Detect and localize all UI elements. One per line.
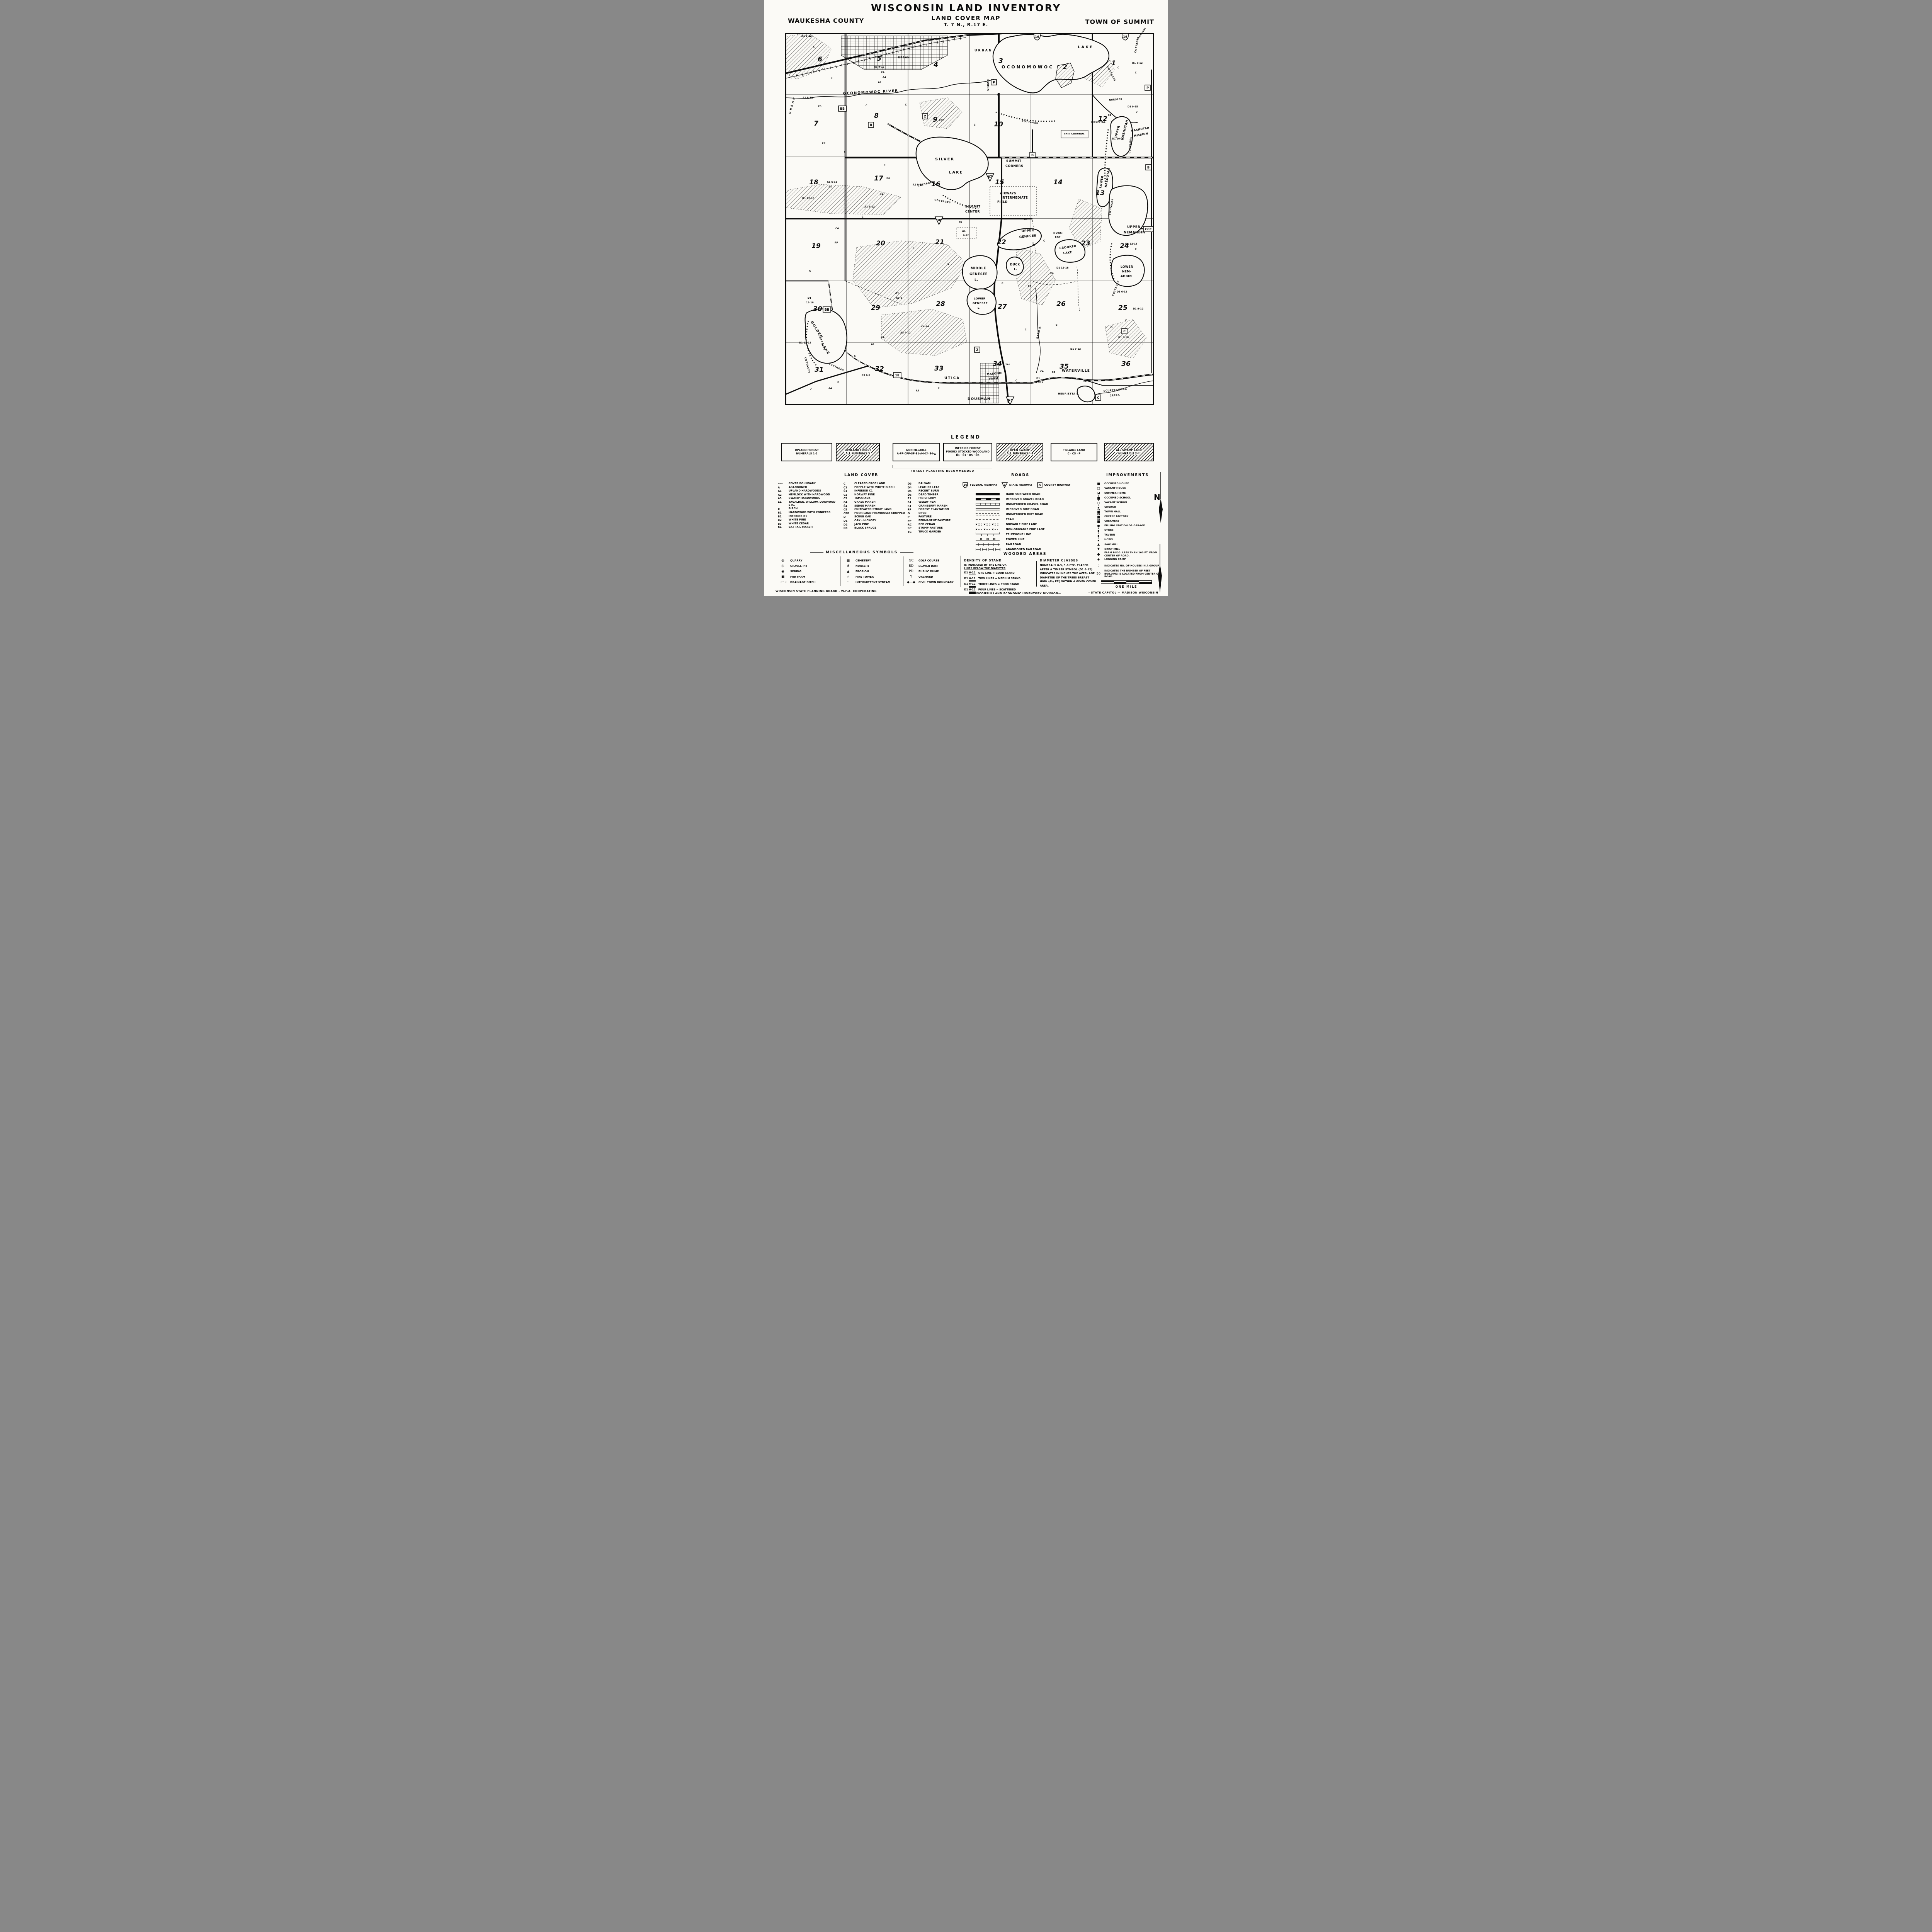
section-number: 36 xyxy=(1121,360,1131,368)
land-cover-header: LAND COVER xyxy=(829,473,894,477)
land-cover-item: E4WEEDY PEAT xyxy=(908,501,959,504)
map-label: NEMAHBIN xyxy=(1124,231,1145,235)
cover-code: D1 12-18 xyxy=(1125,243,1137,245)
cover-code: C xyxy=(947,263,949,265)
density-intro2: LINES BELOW THE DIAMETER xyxy=(964,567,1034,570)
cover-code: C xyxy=(809,270,811,272)
map-label: AHBIN xyxy=(1121,274,1132,278)
marker-number: 16 xyxy=(1035,35,1039,39)
section-number: 30 xyxy=(813,305,822,313)
house-group-item: ⌂INDICATES NO. OF HOUSES IN A GROUP xyxy=(1095,563,1164,568)
map-label: SUMMIT xyxy=(965,205,981,208)
marker-number: BB xyxy=(840,107,845,111)
land-cover-item: A3SWAMP HARDWOODS xyxy=(778,497,842,500)
box-highway-marker: P xyxy=(1145,85,1150,90)
cover-code: C4 xyxy=(881,71,885,74)
occupied-school-icon: S■ xyxy=(1095,496,1102,500)
map-label: DUCK xyxy=(1010,263,1020,266)
map-label: FAIR GROUNDS xyxy=(1064,133,1085,135)
box-highway-marker: B xyxy=(1030,152,1035,158)
cover-code: C xyxy=(1056,324,1058,327)
map-label: COTTAGES xyxy=(828,362,844,372)
map-label: L. xyxy=(978,306,981,310)
cover-code: A1 9-12 xyxy=(913,184,923,186)
cover-code: C xyxy=(913,247,915,250)
cover-code: C4 xyxy=(1052,371,1056,374)
road-type-dirt_u: UNIMPROVED DIRT ROAD xyxy=(976,512,1048,517)
cover-code: D1 10-20 xyxy=(1112,138,1124,140)
fur-farm-icon: ▣ xyxy=(778,575,788,579)
road-type-gravel_u: UNIMPROVED GRAVEL ROAD xyxy=(976,502,1048,507)
land-cover-item: D̄3BALSAM xyxy=(908,482,959,485)
land-cover-item: C5CULTIVATED STUMP LAND xyxy=(844,508,906,511)
road-type-dirt_i: IMPROVED DIRT ROAD xyxy=(976,507,1048,512)
section-number: 23 xyxy=(1081,240,1090,247)
intermittent-stream-icon: ~ xyxy=(843,580,853,584)
section-number: 7 xyxy=(814,120,818,128)
cemetery-icon: ▦ xyxy=(843,559,853,563)
cover-code: A4 xyxy=(916,389,920,392)
occupied-house-item: ■OCCUPIED HOUSE xyxy=(1095,481,1164,486)
land-cover-item: A4TAGALDER, WILLOW, DOGWOOD ETC. xyxy=(778,501,842,507)
scale-bar xyxy=(1101,580,1152,584)
triangle-highway-marker: 30 xyxy=(935,217,943,224)
state-highway-symbol: 3STATE HIGHWAY xyxy=(1001,481,1032,488)
tavern-icon: T▪ xyxy=(1095,533,1102,537)
orchard-item: YORCHARD xyxy=(906,574,960,580)
forest-planting-note: FOREST PLANTING RECOMMENDED xyxy=(893,469,992,473)
forest-planting-bracket xyxy=(893,465,992,468)
cover-code: C xyxy=(938,387,940,390)
cover-code: A4 xyxy=(895,292,899,294)
map-label: WATERVILLE xyxy=(1062,369,1090,373)
wooded-header: WOODED AREAS xyxy=(988,552,1062,556)
box-highway-marker: 18 xyxy=(893,372,901,378)
grist-mill-icon: ▼ xyxy=(1095,548,1102,551)
land-cover-item: B̄1INFERIOR B1 xyxy=(778,515,842,518)
map-label: HENRIETTA L. xyxy=(1058,392,1080,395)
cover-code: D1 xyxy=(808,297,811,299)
cover-code: C4 xyxy=(835,227,839,230)
farm-bldg-item: ●FARM BLDG. LESS THAN 100 FT. FROM CENTE… xyxy=(1095,551,1164,557)
map-label: ERY xyxy=(1055,235,1061,238)
box-highway-marker: CCC xyxy=(1143,226,1153,232)
density-of-stand: DENSITY OF STAND IS INDICATED BY THE LIN… xyxy=(964,559,1034,592)
civil-town-boundary-icon: ◆—◆ xyxy=(906,580,916,584)
map-label: URBAN xyxy=(788,95,796,114)
section-number: 27 xyxy=(998,303,1007,311)
legend-box-6: TILLABLE LANDC · C5 · P xyxy=(1051,443,1097,461)
density-item: D1 6-12ONE LINE = GOOD STAND xyxy=(964,570,1034,576)
road-type-power: POWER LINE xyxy=(976,537,1048,542)
misc-col2: ▦CEMETERY♣NURSERY▲EROSION△FIRE TOWER~INT… xyxy=(843,558,903,585)
map-label: UPPER xyxy=(1127,225,1140,229)
section-number: 5 xyxy=(877,55,881,63)
cover-code: C xyxy=(1135,71,1137,74)
cover-code: C xyxy=(974,124,976,126)
intermittent-stream-item: ~INTERMITTENT STREAM xyxy=(843,580,903,585)
improvements-list: ■OCCUPIED HOUSE□VACANT HOUSE◪SUMMER HOME… xyxy=(1095,481,1164,578)
airways-field-outline xyxy=(990,187,1036,215)
oconomowoc-city-grid xyxy=(841,36,947,70)
land-cover-item: SPSTUMP PASTURE xyxy=(908,527,959,530)
map-label: COTTAGES xyxy=(804,357,811,374)
map-label: GENESEE xyxy=(973,302,988,305)
section-number: 2 xyxy=(1063,63,1067,71)
map-label: COTTAGES xyxy=(934,199,951,204)
legend-box-4: INFERIOR FORESTPOORLY STOCKED WOODLANDB̄… xyxy=(943,443,992,461)
section-number: 17 xyxy=(874,175,883,182)
quarry-icon: ◍ xyxy=(778,559,788,563)
cheese-factory-icon: CH■ xyxy=(1095,514,1102,519)
marker-number: C xyxy=(1097,396,1099,400)
section-number: 10 xyxy=(994,121,1003,128)
triangle-highway-marker: 67 xyxy=(986,173,994,181)
cover-code: A1 9-12 xyxy=(801,35,812,37)
map-label: SUMMIT xyxy=(1006,159,1022,163)
fur-farm-item: ▣FUR FARM xyxy=(778,574,839,580)
diameter-classes: DIAMETER CLASSES NUMERALS 0-3, 3-6 ETC. … xyxy=(1040,559,1097,588)
land-cover-item: F4CRANBERRY MARSH xyxy=(908,505,959,508)
map-label: MIDDLE xyxy=(971,267,986,270)
cover-code: C xyxy=(831,77,833,80)
cover-code: C4 xyxy=(886,177,890,180)
golf-course-icon: GC xyxy=(906,559,916,563)
marker-number: 67 xyxy=(1008,398,1012,402)
land-cover-item: D1OAK - HICKORY xyxy=(844,519,906,522)
shield-highway-marker: 16 xyxy=(1122,34,1128,40)
section-number: 26 xyxy=(1056,300,1066,308)
summer-home-icon: ◪ xyxy=(1095,492,1102,495)
marker-number: 18 xyxy=(895,374,900,377)
lake-golden xyxy=(805,309,847,363)
map-label: CORNERS xyxy=(1005,164,1023,168)
vacant-school-icon: S□ xyxy=(1095,500,1102,505)
roads-header: ROADS xyxy=(996,473,1045,477)
store-icon: S▪ xyxy=(1095,528,1102,532)
occupied-school-item: S■OCCUPIED SCHOOL xyxy=(1095,495,1164,500)
land-cover-item: RCRED CEDAR xyxy=(908,523,959,526)
road-type-trail: TRAIL xyxy=(976,517,1048,522)
section-number: 33 xyxy=(934,365,944,372)
waterville-road xyxy=(1032,374,1154,383)
map-label: URBAN xyxy=(986,79,990,91)
land-cover-item: B4CAT TAIL MARSH xyxy=(778,526,842,529)
cover-code: D1 9-15 xyxy=(1128,105,1138,108)
cheese-factory-item: CH■CHEESE FACTORY xyxy=(1095,514,1164,519)
utica-road xyxy=(868,366,1032,383)
vacant-house-icon: □ xyxy=(1095,487,1102,490)
map-label: NURS- xyxy=(1053,231,1063,235)
box-highway-marker: C xyxy=(1122,328,1127,334)
county-label: WAUKESHA COUNTY xyxy=(788,17,864,24)
legend-box-3: NON-TILLABLEA·PP·CPP·SP·E1·A4·C4·E4·▲ xyxy=(893,443,940,461)
marker-number: Z xyxy=(976,348,978,352)
beaver-dam-icon: BD xyxy=(906,564,916,568)
fire-tower-item: △FIRE TOWER xyxy=(843,574,903,580)
map-label: NASHOTAH xyxy=(1131,126,1150,133)
church-icon: †▪ xyxy=(1095,505,1102,509)
land-cover-col3: D̄3BALSAMD4LEATHER LEAFD5RECENT BURND̄5D… xyxy=(908,482,959,534)
land-cover-item: E1PIN CHERRY xyxy=(908,497,959,500)
density-title: DENSITY OF STAND xyxy=(964,559,1034,562)
marker-number: Z xyxy=(924,115,926,118)
land-cover-item: C̄4SEDGE MARSH xyxy=(844,505,906,508)
section-number: 18 xyxy=(809,179,818,186)
land-cover-item: DSCRUB OAK xyxy=(844,515,906,519)
vacant-school-item: S□VACANT SCHOOL xyxy=(1095,500,1164,505)
marker-number: BB xyxy=(825,308,829,311)
misc-col3: GCGOLF COURSEBDBEAVER DAMPDPUBLIC DUMPYO… xyxy=(906,558,960,585)
land-cover-item: CCLEARED CROP LAND xyxy=(844,482,906,485)
map-label: L. xyxy=(1032,242,1036,245)
saw-mill-icon: ▲ xyxy=(1095,543,1102,546)
civil-town-boundary-item: ◆—◆CIVIL TOWN BOUNDARY xyxy=(906,580,960,585)
erosion-icon: ▲ xyxy=(843,570,853,573)
cover-code: C4 xyxy=(1050,272,1054,275)
cover-code: C5 xyxy=(818,105,821,108)
map-label: SCUPPERNONG xyxy=(1103,388,1127,393)
credit-right: - STATE CAPITOL — MADISON WISCONSIN xyxy=(1088,591,1158,594)
land-cover-col2: CCLEARED CROP LANDC1POPPLE WITH WHITE BI… xyxy=(844,482,906,531)
cover-code: A1 xyxy=(962,230,966,233)
map-label: CENTER xyxy=(965,210,980,213)
cover-code: C xyxy=(854,355,856,357)
store-item: S▪STORE xyxy=(1095,528,1164,533)
cover-code: C4 A4 xyxy=(921,325,929,328)
road-types-list: HARD SURFACED ROADIMPROVED GRAVEL ROADUN… xyxy=(976,492,1048,552)
diameter-text: NUMERALS 0-3, 3-6 ETC. PLACED AFTER A TI… xyxy=(1040,563,1097,588)
land-cover-item: D5RECENT BURN xyxy=(908,490,959,493)
land-cover-item: OOPEN xyxy=(908,512,959,515)
cover-code: C xyxy=(1110,379,1112,381)
cover-code: 12-18 xyxy=(806,301,814,304)
cover-code: D1 9-18 xyxy=(1118,336,1129,339)
land-cover-item: PPPERMANENT PASTURE xyxy=(908,519,959,522)
highway-legend: 16FEDERAL HIGHWAY3STATE HIGHWAYACOUNTY H… xyxy=(962,481,1071,488)
section-number: 28 xyxy=(936,300,945,308)
cover-code: C3-6 xyxy=(896,297,902,299)
map-label: URBAN xyxy=(975,49,993,52)
land-cover-item: TGTRUCK GARDEN xyxy=(908,531,959,534)
land-cover-item: D̄5DEAD TIMBER xyxy=(908,493,959,497)
cover-code: C4 xyxy=(1028,285,1032,287)
cover-code: 6-12 xyxy=(963,234,969,237)
legend-box-5: OPEN SWAMPALL NUMERALS - 4 xyxy=(997,443,1043,461)
legend-box-1: UPLAND FORESTNUMERALS 1-2 xyxy=(781,443,832,461)
marker-number: B xyxy=(870,123,872,127)
section-number: 21 xyxy=(935,238,944,246)
cover-code: C xyxy=(837,381,839,384)
marker-number: B xyxy=(1031,153,1034,157)
map-label: UTICA xyxy=(944,376,960,380)
hotel-item: H▪HOTEL xyxy=(1095,537,1164,542)
box-highway-marker: BB xyxy=(838,106,846,111)
cover-code: C4 xyxy=(1040,370,1044,373)
map-label: MONASTERY xyxy=(1136,27,1147,41)
county-highway-symbol: ACOUNTY HIGHWAY xyxy=(1036,481,1071,488)
section-number: 3 xyxy=(998,57,1003,65)
lake-oconomowoc xyxy=(993,34,1109,93)
svg-text:A: A xyxy=(1039,483,1041,486)
road-type-gravel_i: IMPROVED GRAVEL ROAD xyxy=(976,497,1048,502)
land-cover-item: C2NORWAY PINE xyxy=(844,493,906,497)
fire-tower-icon: △ xyxy=(843,575,853,579)
map-label: DOUSMAN xyxy=(968,397,990,401)
map-label: LAKE xyxy=(949,170,963,175)
cover-code: A1 xyxy=(828,185,832,188)
land-cover-item: AABANDONED xyxy=(778,486,842,489)
cover-code: C xyxy=(1025,328,1027,331)
cover-code: C4 xyxy=(880,193,884,196)
tavern-item: T▪TAVERN xyxy=(1095,533,1164,537)
lake-silver xyxy=(916,137,988,190)
cover-code: TH xyxy=(959,221,962,224)
map-label: HOSPITAL xyxy=(1091,121,1105,124)
land-cover-item: D4LEATHER LEAF xyxy=(908,486,959,489)
section-number: 25 xyxy=(1118,304,1128,312)
gravel-pit-icon: ◎ xyxy=(778,564,788,568)
triangle-highway-marker: 67 xyxy=(1006,397,1014,405)
road-type-fire_n: NON-DRIVABLE FIRE LANE xyxy=(976,527,1048,532)
map-label: INTERMEDIATE xyxy=(1002,196,1028,199)
page-title: WISCONSIN LAND INVENTORY xyxy=(764,2,1168,14)
cover-code: D1 9-12 xyxy=(1133,308,1143,310)
box-highway-marker: P xyxy=(991,80,997,85)
cover-code: A1 xyxy=(878,81,881,84)
box-highway-marker: B xyxy=(1146,165,1151,170)
cover-code: D1 12-18 xyxy=(799,342,811,344)
road-type-tel: TELEPHONE LINE xyxy=(976,532,1048,537)
map-area[interactable]: 6543217891012181716151413192021222324302… xyxy=(785,33,1154,405)
summer-home-item: ◪SUMMER HOME xyxy=(1095,491,1164,495)
map-label: L. xyxy=(1014,267,1017,271)
logging-camp-item: ◆LOGGING CAMP xyxy=(1095,557,1164,562)
map-label: L. xyxy=(975,278,978,282)
marker-number: P xyxy=(993,81,995,84)
town-hall-icon: TH■ xyxy=(1095,510,1102,514)
section-number: 6 xyxy=(818,56,822,63)
cover-code: A1 9-12 xyxy=(864,206,875,208)
land-cover-item: PPASTURE xyxy=(908,515,959,519)
page: WISCONSIN LAND INVENTORY LAND COVER MAP … xyxy=(764,0,1168,596)
land-cover-item: C1POPPLE WITH WHITE BIRCH xyxy=(844,486,906,489)
cover-code: CPP xyxy=(939,119,944,122)
spring-item: ◉SPRING xyxy=(778,569,839,574)
creamery-icon: CR■ xyxy=(1095,519,1102,523)
orchard-icon: Y xyxy=(906,575,916,579)
cover-code: A4 xyxy=(828,387,832,390)
oconomowoc-river xyxy=(785,79,994,99)
cover-code: C xyxy=(884,164,886,167)
cover-code: C xyxy=(1136,111,1138,114)
marker-number: B xyxy=(1147,166,1150,169)
cover-code: C xyxy=(1043,240,1045,242)
marker-number: P xyxy=(1146,86,1149,90)
map-label: HOSPITAL xyxy=(997,364,1010,366)
cover-code: C xyxy=(862,216,864,218)
box-highway-marker: Z xyxy=(975,347,980,352)
marker-number: 16 xyxy=(1123,35,1128,39)
section-number: 22 xyxy=(997,238,1006,246)
cover-code: D1 12-18 xyxy=(802,197,814,200)
map-label: LOWER xyxy=(974,297,986,300)
section-number: 20 xyxy=(876,240,885,247)
cover-code: D1 9-12 xyxy=(1070,348,1081,350)
map-label: LOWER xyxy=(1121,265,1133,269)
map-svg: 6543217891012181716151413192021222324302… xyxy=(785,33,1154,405)
drainage-ditch-icon: →··→ xyxy=(778,580,788,584)
land-cover-item: C4GRASS MARSH xyxy=(844,501,906,504)
land-cover-item: FPFOREST PLANTATION xyxy=(908,508,959,511)
legend-box-2: LOWLAND FORESTALL NUMERALS 3 xyxy=(836,443,880,461)
filling-station-item: ●FILLING STATION OR GARAGE xyxy=(1095,524,1164,528)
cover-code: C xyxy=(1125,319,1127,322)
road-type-rr_ab: ABANDONED RAILROAD xyxy=(976,547,1048,552)
section-number: 19 xyxy=(811,242,821,250)
map-label: URBAN xyxy=(898,56,910,59)
public-dump-item: PDPUBLIC DUMP xyxy=(906,569,960,574)
cover-code: A4 xyxy=(883,76,886,79)
cover-code: C4 xyxy=(1024,218,1028,221)
creamery-item: CR■CREAMERY xyxy=(1095,519,1164,524)
cover-code: D1 xyxy=(1036,377,1040,380)
legend-title: LEGEND xyxy=(764,434,1168,440)
public-dump-icon: PD xyxy=(906,570,916,573)
nursery-item: ♣NURSERY xyxy=(843,563,903,569)
cover-code: C xyxy=(1135,248,1137,251)
section-number: 13 xyxy=(1095,189,1105,197)
cover-code: C xyxy=(1117,66,1119,69)
cover-code: A1 xyxy=(871,343,874,346)
marker-number: 67 xyxy=(988,175,992,179)
land-cover-item: D2JACK PINE xyxy=(844,523,906,526)
density-intro1: IS INDICATED BY THE LINE OR xyxy=(964,563,1034,567)
svg-text:3: 3 xyxy=(1003,483,1005,486)
cover-code: PP xyxy=(822,142,826,145)
cover-code: C xyxy=(810,388,812,391)
map-label: AIRWAYS xyxy=(1000,192,1016,195)
quarry-item: ◍QUARRY xyxy=(778,558,839,563)
road-type-hard: HARD SURFACED ROAD xyxy=(976,492,1048,497)
section-number: 1 xyxy=(1111,60,1116,67)
filling-station-icon: ● xyxy=(1095,524,1102,527)
improvements-header: IMPROVEMENTS xyxy=(1097,473,1158,477)
land-cover-item: ·····COVER BOUNDARY xyxy=(778,482,842,485)
federal-highway-symbol: 16FEDERAL HIGHWAY xyxy=(962,481,997,488)
section-number: 15 xyxy=(995,179,1004,186)
box-highway-marker: BB xyxy=(823,307,831,312)
marker-number: CCC xyxy=(1145,228,1152,231)
map-label: GENESEE xyxy=(969,272,988,276)
land-cover-item: D3BLACK SPRUCE xyxy=(844,527,906,530)
cemetery-item: ▦CEMETERY xyxy=(843,558,903,563)
land-cover-col1: ·····COVER BOUNDARYAABANDONEDA1UPLAND HA… xyxy=(778,482,842,530)
misc-col1: ◍QUARRY◎GRAVEL PIT◉SPRING▣FUR FARM→··→DR… xyxy=(778,558,839,585)
legend-box-7: ALL SWAMP LANDNUMERALS 3-4 xyxy=(1104,443,1154,461)
box-highway-marker: B xyxy=(868,122,874,128)
saw-mill-item: ▲SAW MILL xyxy=(1095,542,1164,547)
section-number: 29 xyxy=(871,304,880,312)
cover-code: C xyxy=(1002,282,1003,285)
cover-code: C3 6-9 xyxy=(862,374,870,377)
cover-code: A1 9-12 xyxy=(874,66,884,68)
cover-code: 12-18 xyxy=(1036,381,1043,384)
map-label: MISSION xyxy=(1134,132,1148,138)
nursery-icon: ♣ xyxy=(843,564,853,568)
road-type-fire_d: DRIVABLE FIRE LANE xyxy=(976,522,1048,527)
vacant-house-item: □VACANT HOUSE xyxy=(1095,486,1164,491)
